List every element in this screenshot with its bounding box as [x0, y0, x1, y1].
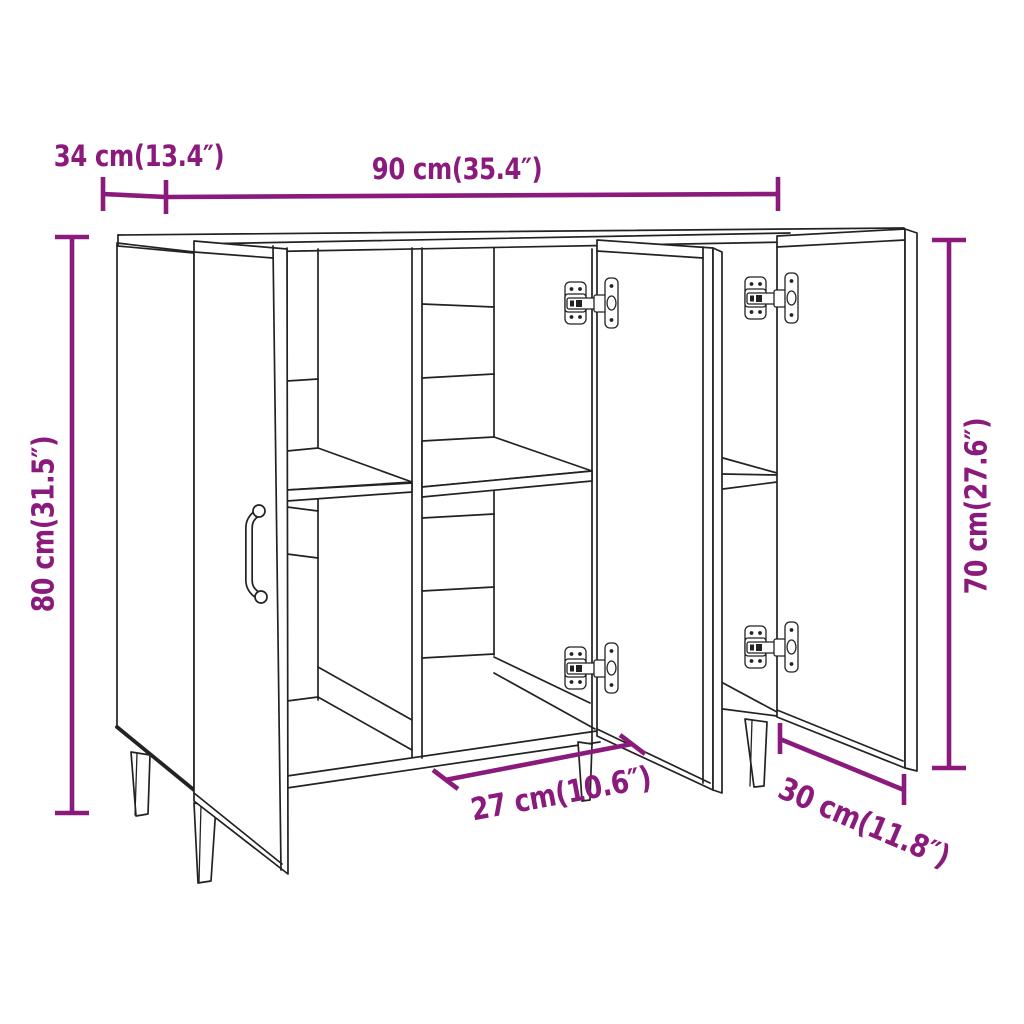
leg-back-right: [745, 719, 767, 787]
top-board-back-edge: [118, 228, 904, 235]
dimension-label-top-depth: 34 cm(13.4″): [54, 139, 224, 173]
divider-left: [412, 248, 422, 758]
dimension-label-right-height: 70 cm(27.6″): [960, 418, 995, 594]
dim-line-top-depth: [103, 177, 166, 211]
side-panel-left: [117, 243, 194, 790]
dimension-label-top-width: 90 cm(35.4″): [372, 152, 542, 186]
left-door: [194, 241, 288, 874]
hinge-icon: [745, 273, 798, 323]
dimension-label-left-height: 80 cm(31.5″): [27, 436, 62, 612]
leg-back-left: [131, 752, 150, 816]
diagram-canvas: 34 cm(13.4″) 90 cm(35.4″) 80 cm(31.5″) 7…: [0, 0, 1024, 1024]
shelf-right-edge: [723, 458, 777, 489]
hinge-icon: [745, 622, 798, 672]
